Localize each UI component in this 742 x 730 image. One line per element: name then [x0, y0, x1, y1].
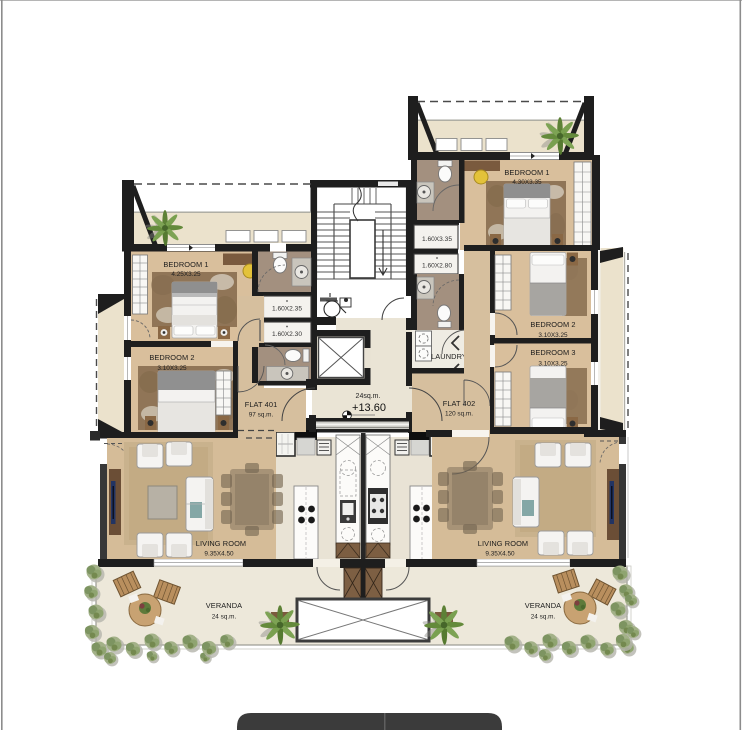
- svg-text:VERANDA: VERANDA: [206, 601, 242, 610]
- svg-text:LAUNDRY: LAUNDRY: [431, 352, 467, 361]
- svg-text:120 sq.m.: 120 sq.m.: [445, 411, 473, 418]
- svg-text:3.10X3.25: 3.10X3.25: [157, 365, 187, 372]
- svg-text:BEDROOM 1: BEDROOM 1: [504, 168, 549, 177]
- svg-text:1.60X2.35: 1.60X2.35: [272, 306, 302, 313]
- svg-text:1.60X2.30: 1.60X2.30: [272, 331, 302, 338]
- svg-text:24 sq.m.: 24 sq.m.: [212, 614, 237, 621]
- svg-text:BEDROOM 3: BEDROOM 3: [530, 348, 575, 357]
- svg-text:3.10X3.25: 3.10X3.25: [538, 332, 568, 339]
- svg-text:LIVING ROOM: LIVING ROOM: [478, 539, 528, 548]
- svg-text:BEDROOM 1: BEDROOM 1: [163, 260, 208, 269]
- svg-text:BEDROOM 2: BEDROOM 2: [149, 353, 194, 362]
- svg-text:+13.60: +13.60: [352, 402, 386, 414]
- svg-text:VERANDA: VERANDA: [525, 601, 561, 610]
- svg-text:9.35X4.50: 9.35X4.50: [485, 551, 515, 558]
- svg-text:4.30X3.35: 4.30X3.35: [512, 179, 542, 186]
- svg-text:FLAT 402: FLAT 402: [443, 399, 476, 408]
- svg-text:1.60X3.35: 1.60X3.35: [422, 236, 452, 243]
- svg-text:24 sq.m.: 24 sq.m.: [531, 614, 556, 621]
- svg-text:24sq.m.: 24sq.m.: [356, 393, 381, 400]
- svg-text:97 sq.m.: 97 sq.m.: [249, 412, 274, 419]
- svg-text:4.25X3.25: 4.25X3.25: [171, 271, 201, 278]
- svg-text:1.60X2.80: 1.60X2.80: [422, 263, 452, 270]
- svg-text:LIVING ROOM: LIVING ROOM: [196, 539, 246, 548]
- svg-text:BEDROOM 2: BEDROOM 2: [530, 320, 575, 329]
- svg-text:9.35X4.50: 9.35X4.50: [204, 551, 234, 558]
- svg-text:FLAT 401: FLAT 401: [245, 400, 278, 409]
